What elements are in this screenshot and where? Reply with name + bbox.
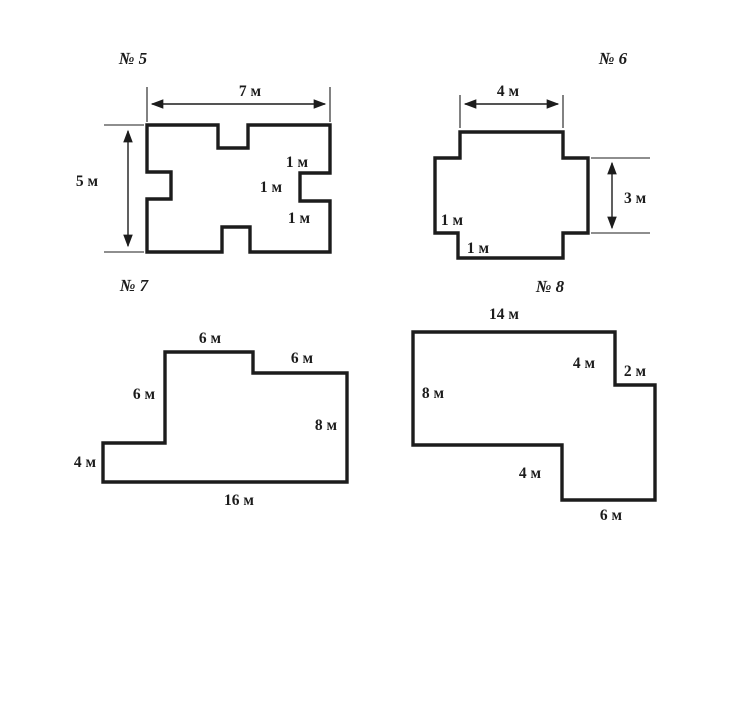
top-right-label: 6 м: [291, 350, 314, 367]
figure-5-outline: [147, 125, 330, 252]
figure-6-outline: [435, 132, 588, 258]
left-upper-label: 6 м: [133, 386, 156, 403]
figure-5: № 5 7 м 5 м 1 м 1 м 1 м: [76, 49, 330, 252]
figure-8-dimensions: 14 м 4 м 2 м 8 м 4 м 6 м: [422, 306, 647, 524]
right-upper-label: 4 м: [573, 355, 596, 372]
notch-top-label: 1 м: [286, 154, 309, 171]
width-label: 7 м: [239, 83, 262, 100]
right-label: 8 м: [315, 417, 338, 434]
figure-8-title: № 8: [535, 277, 565, 296]
left-step-label: 1 м: [441, 212, 464, 229]
figures-canvas: № 5 7 м 5 м 1 м 1 м 1 м № 6: [0, 0, 750, 704]
figure-6-dimensions: 4 м 3 м 1 м 1 м: [441, 83, 650, 257]
figure-6-title: № 6: [598, 49, 628, 68]
step-label: 2 м: [624, 363, 647, 380]
figure-6: № 6 4 м 3 м 1 м 1 м: [435, 49, 650, 258]
height-label: 5 м: [76, 173, 99, 190]
figure-7: № 7 6 м 6 м 6 м 8 м 4 м 16 м: [74, 276, 347, 509]
notch-bottom-label: 1 м: [288, 210, 311, 227]
top-label: 4 м: [497, 83, 520, 100]
left-label: 8 м: [422, 385, 445, 402]
right-label: 3 м: [624, 190, 647, 207]
figure-7-outline: [103, 352, 347, 482]
bottom-label: 16 м: [224, 492, 254, 509]
notch-mid-label: 1 м: [260, 179, 283, 196]
inner-vertical-label: 4 м: [519, 465, 542, 482]
top-label: 6 м: [199, 330, 222, 347]
left-lower-label: 4 м: [74, 454, 97, 471]
top-label: 14 м: [489, 306, 519, 323]
bottom-step-label: 1 м: [467, 240, 490, 257]
bottom-label: 6 м: [600, 507, 623, 524]
figure-8: № 8 14 м 4 м 2 м 8 м 4 м 6 м: [413, 277, 655, 524]
figure-7-title: № 7: [119, 276, 150, 295]
figure-5-title: № 5: [118, 49, 148, 68]
figure-5-dimensions: 7 м 5 м 1 м 1 м 1 м: [76, 83, 330, 252]
worksheet-page: № 5 7 м 5 м 1 м 1 м 1 м № 6: [0, 0, 750, 704]
